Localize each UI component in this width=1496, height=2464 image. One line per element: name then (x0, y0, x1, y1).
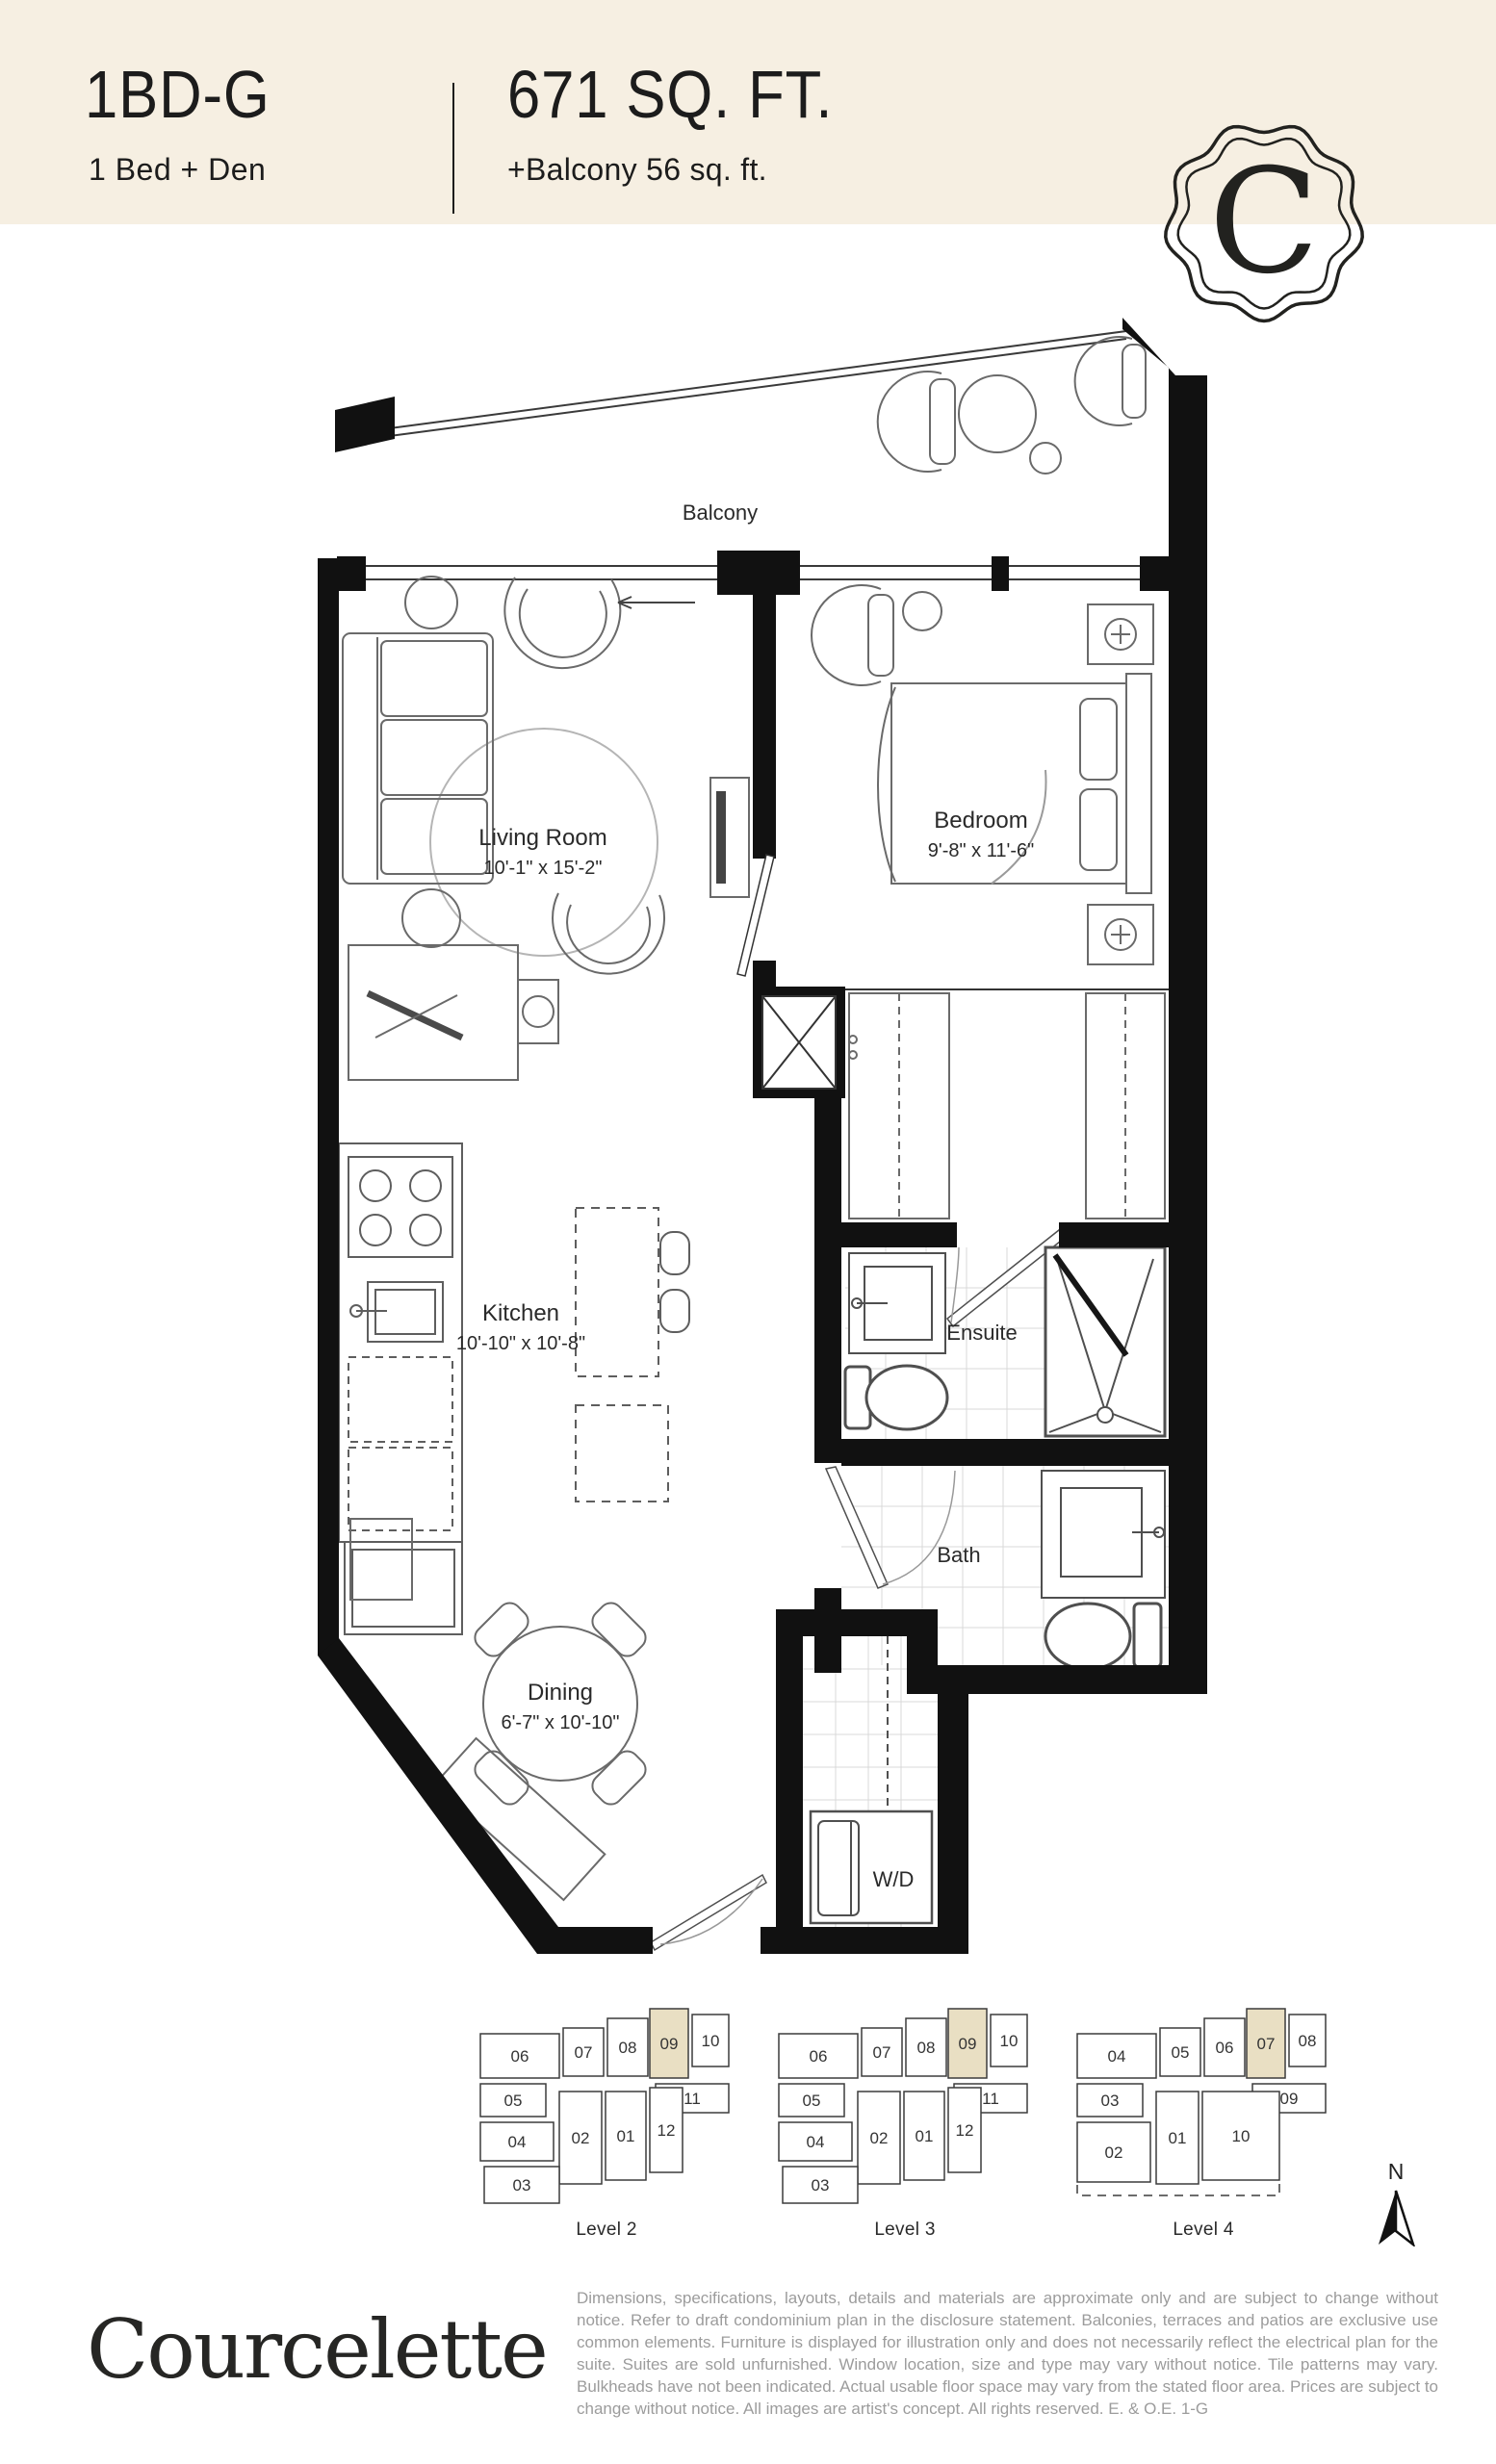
keyplan-unit-label: 03 (812, 2176, 830, 2194)
balcony-furniture (878, 337, 1146, 474)
north-arrow-right (1396, 2191, 1413, 2245)
keyplan-unit-label: 01 (1169, 2129, 1187, 2147)
keyplan-unit-label: 05 (504, 2092, 523, 2110)
keyplan-unit-label: 02 (870, 2129, 889, 2147)
keyplan-unit-label: 11 (982, 2090, 999, 2108)
keyplan-unit-label: 10 (1000, 2032, 1019, 2050)
keyplan-unit-label: 08 (917, 2039, 936, 2057)
bath-fixtures (826, 1467, 1165, 1669)
dining-label: Dining (528, 1680, 593, 1706)
keyplan-unit-label: 04 (807, 2133, 825, 2151)
collection-badge: C (1148, 106, 1380, 337)
bedroom-door (737, 855, 774, 976)
keyplan-unit-label: 09 (959, 2035, 977, 2053)
keyplan-unit-label: 02 (1105, 2143, 1123, 2162)
plan-type: 1 Bed + Den (89, 152, 266, 188)
brand-wordmark: Courcelette (87, 2302, 547, 2397)
walls (318, 318, 1207, 1954)
keyplan-unit-label: 03 (513, 2176, 531, 2194)
shaft (762, 996, 836, 1089)
ensuite-label: Ensuite (946, 1321, 1017, 1345)
keyplan-level-4: 04050607080309020110Level 4 (1064, 2007, 1343, 2241)
keyplan-unit-label: 04 (1108, 2047, 1126, 2066)
keyplan-unit-label: 06 (1216, 2039, 1234, 2057)
keyplan-unit-label: 10 (702, 2032, 720, 2050)
keyplan-unit-label: 01 (617, 2127, 635, 2145)
direction-arrow (618, 597, 695, 608)
living-label: Living Room (478, 825, 606, 851)
keyplan-unit-label: 06 (511, 2047, 529, 2066)
keyplan-unit-label: 04 (508, 2133, 527, 2151)
bath-label: Bath (937, 1543, 980, 1567)
balcony-railing (368, 331, 1126, 439)
keyplan-level-2: 060708091005110402011203Level 2 (467, 2007, 746, 2241)
keyplan-unit-label: 10 (1232, 2127, 1251, 2145)
balcony-label: Balcony (683, 500, 758, 525)
north-arrow: N (1371, 2158, 1421, 2246)
bedroom-dims: 9'-8" x 11'-6" (928, 840, 1034, 861)
floorplan: Balcony Living Room 10'-1" x 15'-2" Bedr… (318, 318, 1213, 1963)
badge-letter: C (1209, 139, 1320, 306)
keyplan-unit-label: 07 (873, 2043, 891, 2062)
floorplan-page: 1BD-G 1 Bed + Den 671 SQ. FT. +Balcony 5… (0, 0, 1496, 2464)
keyplan-unit-label: 12 (956, 2121, 974, 2140)
keyplan-unit-label: 07 (1257, 2035, 1276, 2053)
keyplan-unit-label: 02 (572, 2129, 590, 2147)
keyplan-level-label: Level 4 (1064, 2220, 1343, 2241)
keyplan-unit-label: 07 (575, 2043, 593, 2062)
keyplan-level-3: 060708091005110402011203Level 3 (765, 2007, 1045, 2241)
header-divider (452, 83, 454, 214)
kitchen-dims: 10'-10" x 10'-8" (456, 1333, 585, 1354)
kitchen-label: Kitchen (482, 1300, 559, 1326)
plan-code: 1BD-G (85, 56, 271, 133)
north-label: N (1388, 2159, 1405, 2184)
bedroom-furniture (812, 585, 1153, 964)
north-arrow-left (1379, 2191, 1396, 2245)
keyplan-unit-label: 05 (1172, 2043, 1190, 2062)
disclaimer-text: Dimensions, specifications, layouts, det… (577, 2288, 1438, 2421)
laundry-label: W/D (873, 1867, 915, 1891)
dining-dims: 6'-7" x 10'-10" (501, 1712, 619, 1733)
keyplan-unit-label: 03 (1101, 2092, 1120, 2110)
bedroom-closets (845, 989, 1169, 1219)
keyplan-unit-label: 09 (1280, 2090, 1299, 2108)
kitchen-fixtures (339, 1143, 689, 1634)
keyplan-unit-label: 09 (660, 2035, 679, 2053)
suite-area: 671 SQ. FT. (507, 56, 833, 133)
keyplan-unit-label: 08 (619, 2039, 637, 2057)
keyplan-unit-label: 05 (803, 2092, 821, 2110)
keyplan-unit-label: 11 (684, 2090, 701, 2108)
keyplan-unit-label: 08 (1299, 2032, 1317, 2050)
keyplan-unit-label: 06 (810, 2047, 828, 2066)
keyplan-level-label: Level 2 (467, 2220, 746, 2241)
bedroom-label: Bedroom (934, 808, 1027, 834)
living-dims: 10'-1" x 15'-2" (483, 858, 602, 879)
keyplan-unit-label: 01 (916, 2127, 934, 2145)
keyplan-unit-label: 12 (658, 2121, 676, 2140)
balcony-area: +Balcony 56 sq. ft. (507, 152, 767, 188)
dining-furniture (350, 1519, 651, 1900)
keyplan-level-label: Level 3 (765, 2220, 1045, 2241)
